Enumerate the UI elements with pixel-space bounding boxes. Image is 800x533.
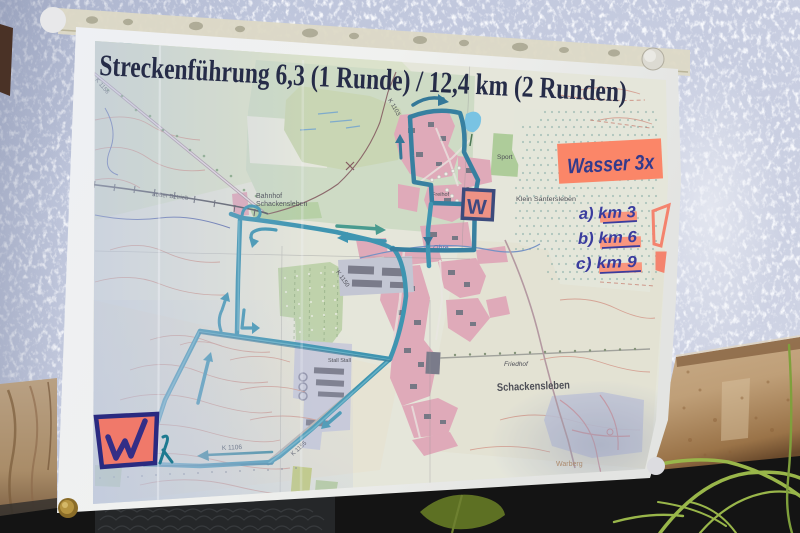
svg-text:b) km 6: b) km 6	[578, 229, 638, 248]
svg-text:Wasser 3x: Wasser 3x	[567, 151, 656, 179]
svg-text:a) km 3: a) km 3	[579, 204, 637, 223]
svg-text:c) km 9: c) km 9	[576, 254, 638, 273]
